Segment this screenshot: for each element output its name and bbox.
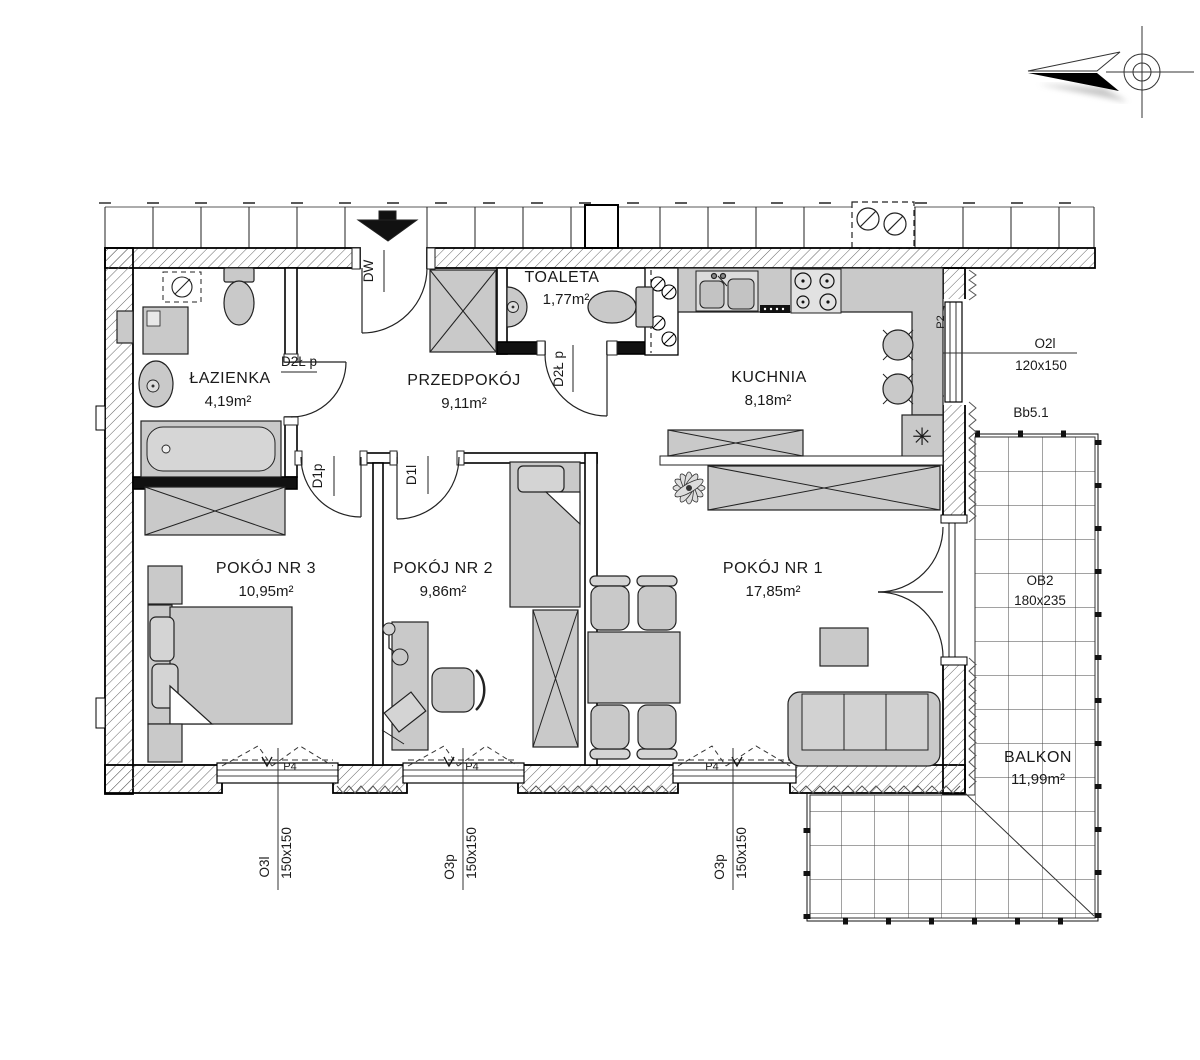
door-label-dw: DW bbox=[361, 260, 376, 283]
room-area-balkon: 11,99m² bbox=[1011, 771, 1065, 788]
sill-label-p4: P4 bbox=[283, 761, 296, 773]
sill-label-p4: P4 bbox=[705, 761, 718, 773]
wall-recess bbox=[117, 311, 133, 343]
section-code: Bb5.1 bbox=[1013, 405, 1048, 420]
balcony-double-door bbox=[878, 527, 943, 657]
pillow bbox=[518, 466, 564, 492]
kitchen-room-divider bbox=[660, 456, 943, 465]
floor-plan-page: ✳ bbox=[0, 0, 1200, 1060]
bathtub bbox=[141, 421, 281, 477]
toilet-bowl bbox=[224, 281, 254, 325]
dining-chair bbox=[637, 705, 677, 759]
nightstand bbox=[148, 566, 182, 604]
window-o2l bbox=[927, 299, 1077, 405]
room-label-pokoj1: POKÓJ NR 1 bbox=[723, 558, 823, 577]
wall-stub bbox=[585, 205, 618, 248]
vent-label-p2: P2 bbox=[935, 315, 947, 328]
window-label-w2: O3p bbox=[442, 854, 457, 880]
door-label-bathroom: D2Ł p bbox=[281, 354, 317, 369]
toilet2-tank bbox=[636, 287, 653, 327]
north-arrow-icon bbox=[1028, 26, 1194, 118]
stove bbox=[791, 269, 841, 313]
room-area-pokoj2: 9,86m² bbox=[420, 583, 467, 600]
room3-furniture bbox=[145, 487, 292, 762]
stool bbox=[883, 374, 913, 404]
balcony-door-opening bbox=[941, 515, 967, 665]
sideboard bbox=[708, 466, 940, 510]
pillow bbox=[150, 617, 174, 661]
kitchen-cabinet bbox=[668, 430, 803, 456]
room-label-toaleta: TOALETA bbox=[525, 269, 600, 286]
kitchen-fixtures: ✳ bbox=[660, 268, 943, 510]
plant-icon bbox=[673, 472, 705, 504]
dining-chair bbox=[637, 576, 677, 630]
window-size-w2: 150x150 bbox=[464, 827, 479, 879]
sill-label-p4: P4 bbox=[465, 761, 478, 773]
toilet-tank bbox=[224, 268, 254, 282]
hall-wardrobe bbox=[430, 270, 496, 352]
window-label-w1: O3l bbox=[257, 856, 272, 877]
entrance-arrow-icon bbox=[358, 211, 417, 241]
room-label-kuchnia: KUCHNIA bbox=[731, 369, 807, 386]
wall-mark bbox=[96, 406, 105, 430]
dining-chair bbox=[590, 576, 630, 630]
wall-mark bbox=[96, 698, 105, 728]
room2-door bbox=[390, 451, 464, 519]
toilet-door bbox=[537, 341, 617, 416]
wardrobe bbox=[145, 487, 285, 535]
room-label-pokoj2: POKÓJ NR 2 bbox=[393, 558, 493, 577]
wardrobe bbox=[533, 610, 578, 747]
door-label-d1l: D1l bbox=[404, 465, 419, 485]
corridor-strip bbox=[99, 202, 1095, 248]
window-o3l bbox=[217, 746, 338, 890]
fridge-icon: ✳ bbox=[912, 424, 932, 451]
door-label-toilet: D2Ł p bbox=[551, 351, 566, 387]
door-label-d1p: D1p bbox=[310, 464, 325, 489]
balcony-door-code: OB2 bbox=[1026, 573, 1053, 588]
room-area-lazienka: 4,19m² bbox=[205, 393, 252, 410]
desk-chair bbox=[432, 668, 484, 712]
room-label-przedpokoj: PRZEDPOKÓJ bbox=[407, 370, 520, 389]
sofa bbox=[788, 692, 940, 766]
room2-furniture bbox=[382, 462, 580, 750]
meter-box bbox=[852, 202, 914, 248]
floor-plan-drawing: ✳ bbox=[0, 0, 1200, 1060]
room-area-przedpokoj: 9,11m² bbox=[441, 395, 487, 412]
window-size-w1: 150x150 bbox=[279, 827, 294, 879]
room1-furniture bbox=[588, 576, 940, 766]
kitchen-sink bbox=[696, 271, 758, 311]
dining-chair bbox=[590, 705, 630, 759]
room-label-balkon: BALKON bbox=[1004, 749, 1072, 766]
balcony-door-size: 180x235 bbox=[1014, 593, 1066, 608]
room-area-pokoj1: 17,85m² bbox=[745, 583, 800, 600]
room-area-pokoj3: 10,95m² bbox=[238, 583, 293, 600]
window-size-o2l: 120x150 bbox=[1015, 358, 1067, 373]
room-area-kuchnia: 8,18m² bbox=[745, 392, 792, 409]
side-table bbox=[820, 628, 868, 666]
nightstand bbox=[148, 724, 182, 762]
window-size-w3: 150x150 bbox=[734, 827, 749, 879]
window-label-w3: O3p bbox=[712, 854, 727, 880]
room3-door bbox=[295, 451, 367, 517]
room-area-toaleta: 1,77m² bbox=[543, 291, 590, 308]
room-label-pokoj3: POKÓJ NR 3 bbox=[216, 558, 316, 577]
stool bbox=[883, 330, 913, 360]
toilet2-bowl bbox=[588, 291, 636, 323]
window-label-o2l: O2l bbox=[1034, 336, 1055, 351]
room-label-lazienka: ŁAZIENKA bbox=[189, 370, 270, 387]
dining-table bbox=[588, 632, 680, 703]
